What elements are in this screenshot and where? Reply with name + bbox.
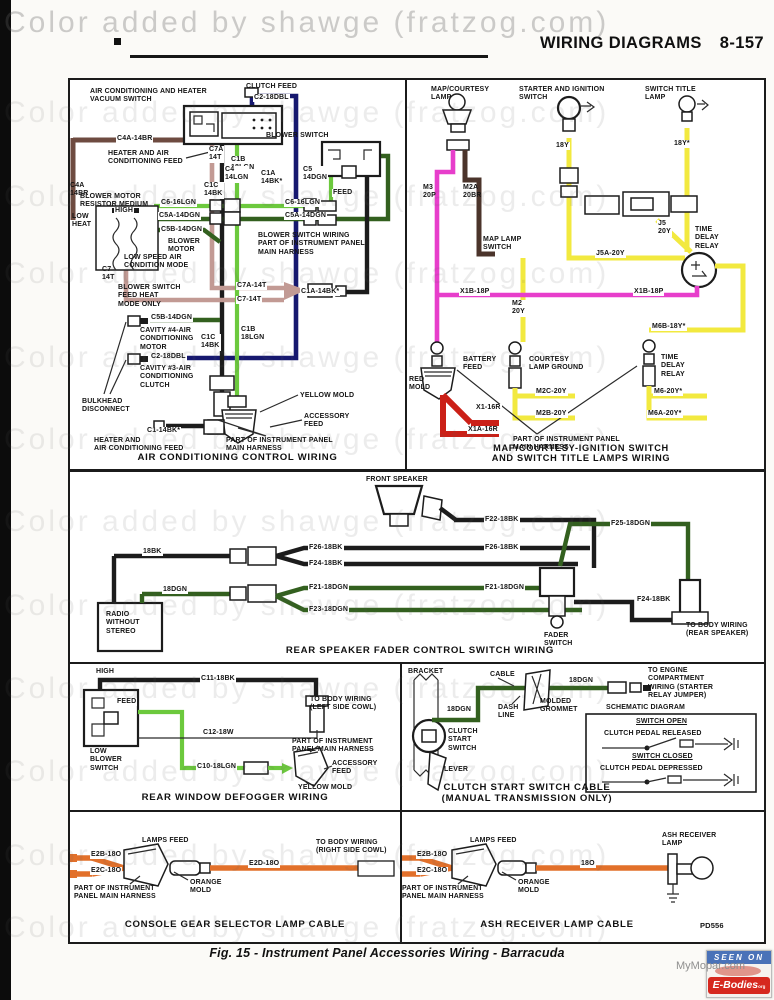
diagram-label: TIME DELAY RELAY [695, 226, 719, 251]
wire-label: X1B-18P [459, 288, 490, 296]
wire-label: C2-18DBL [253, 94, 290, 102]
panel-title-map: MAP/COURTESY-IGNITION SWITCH AND SWITCH … [421, 443, 741, 463]
wire-label: F24-18BK [308, 560, 344, 568]
wire-label: M6B-18Y* [651, 323, 687, 331]
body-connector-symbol [358, 861, 394, 876]
diagram-label: CAVITY #3-AIR CONDITIONING CLUTCH [140, 365, 194, 390]
manual-page: Color added by shawge (fratzog.com) Colo… [0, 0, 774, 1000]
diagram-label: MAP LAMP SWITCH [483, 236, 521, 253]
ash-lamp-symbol [667, 854, 713, 902]
wire-label: X1-16R [475, 404, 502, 412]
clutch-switch-symbol [413, 720, 446, 790]
diagram-label: PART OF INSTRUMENT PANEL MAIN HARNESS [74, 885, 156, 902]
diagram-label: BLOWER SWITCH FEED HEAT MODE ONLY [118, 284, 181, 309]
wire-label: C2-18DBL [150, 353, 187, 361]
front-speaker-symbol [376, 486, 456, 526]
diagram-label: CLUTCH START SWITCH [448, 728, 478, 753]
wire-label: M2 20Y [511, 300, 526, 317]
diagram-label: BATTERY FEED [463, 356, 496, 373]
diagram-label: LOW SPEED AIR CONDITION MODE [124, 254, 188, 271]
page-header: WIRING DIAGRAMS 8-157 [540, 34, 764, 53]
diagram-label: ACCESSORY FEED [304, 413, 349, 430]
wire-label: J5A-20Y [595, 250, 626, 258]
diagram-label: BLOWER MOTOR [168, 238, 200, 255]
diagram-label: SWITCH TITLE LAMP [645, 86, 696, 103]
wire-label: C1-14BK* [146, 427, 181, 435]
courtesy-ground-lamp-symbol [509, 342, 521, 388]
diagram-label: PART OF INSTRUMENT PANEL MAIN HARNESS [292, 738, 374, 755]
blower-switch-symbol [322, 142, 380, 178]
wire-label: E2B-18O [416, 851, 448, 859]
diagram-label: COURTESY LAMP GROUND [529, 356, 583, 373]
diagram-label: TO ENGINE COMPARTMENT WIRING (STARTER RE… [648, 667, 713, 701]
diagram-label: TO BODY WIRING (REAR SPEAKER) [686, 622, 748, 639]
diagram-label: BULKHEAD DISCONNECT [82, 398, 130, 415]
diagram-label: BLOWER SWITCH [266, 132, 329, 140]
fader-switch-symbol [540, 568, 574, 628]
wire-label: C1B 18LGN [240, 326, 265, 343]
panel-title-fader: REAR SPEAKER FADER CONTROL SWITCH WIRING [220, 645, 620, 656]
panel-air-conditioning: AIR CONDITIONING AND HEATER VACUUM SWITC… [68, 78, 407, 471]
wire-label: C1C 14BK [203, 182, 224, 199]
diagram-label: TO BODY WIRING (RIGHT SIDE COWL) [316, 839, 387, 856]
badge-brand-text: E-Bodies [713, 979, 759, 991]
diagram-label: SCHEMATIC DIAGRAM [606, 704, 685, 712]
diagram-label: RED MOLD [409, 376, 430, 393]
diagram-label: LOW BLOWER SWITCH [90, 748, 122, 773]
diagram-label: CLUTCH PEDAL RELEASED [604, 730, 702, 738]
wire-label: C5 14DGN [302, 166, 328, 183]
diagram-label: HIGH [114, 207, 134, 215]
wire-label: M2B-20Y [535, 410, 568, 418]
watermark: Color added by shawge (fratzog.com) [4, 6, 609, 40]
wire-label: E2C-18O [416, 867, 448, 875]
diagram-label: CAVITY #4-AIR CONDITIONING MOTOR [140, 327, 194, 352]
diagram-label: MOLDED GROMMET [540, 698, 578, 715]
wire-label: C6-16LGN [160, 199, 197, 207]
wire-label: C1A-14BK* [300, 288, 340, 296]
diagram-label: FRONT SPEAKER [366, 476, 428, 484]
diagram-label: SWITCH CLOSED [632, 753, 693, 761]
ebodies-badge: SEEN ON E-Bodiesorg [706, 950, 772, 998]
wire-label: E2B-18O [90, 851, 122, 859]
wire-label: J5 20Y [657, 220, 672, 237]
badge-brand: E-Bodiesorg [708, 977, 770, 994]
wire-label: C1C 14BK [200, 334, 221, 351]
wire-label: E2C-18O [90, 867, 122, 875]
wire-label: M2C-20Y [535, 388, 568, 396]
wire-label: C7A 14T [208, 146, 224, 163]
diagram-label: DASH LINE [498, 704, 518, 721]
wire-label: F22-18BK [484, 516, 520, 524]
time-delay-lamp-symbol [643, 340, 655, 386]
figure-caption: Fig. 15 - Instrument Panel Accessories W… [0, 946, 774, 960]
wire-label: C7A-14T [236, 282, 267, 290]
diagram-label: HEATER AND AIR CONDITIONING FEED [108, 150, 183, 167]
wire-label: 18DGN [446, 706, 472, 714]
badge-brand-suffix: org [758, 984, 765, 989]
wire-label: C11-18BK [200, 675, 236, 683]
wire-label: C10-18LGN [196, 763, 237, 771]
diagram-label: AIR CONDITIONING AND HEATER VACUUM SWITC… [90, 88, 207, 105]
wire-label: F24-18BK [636, 596, 672, 604]
wire-label: M6A-20Y* [647, 410, 683, 418]
part-code: PD556 [700, 921, 724, 930]
diagram-label: TIME DELAY RELAY [661, 354, 685, 379]
wire-label: M3 20P [423, 184, 436, 201]
body-connector-symbol [672, 580, 708, 624]
diagram-label: HIGH [96, 668, 114, 676]
diagram-label: CLUTCH FEED [246, 83, 297, 91]
wire-label: 18Y [555, 142, 570, 150]
diagram-label: LAMPS FEED [142, 837, 189, 845]
diagram-label: FEED [332, 189, 353, 197]
panel-console-lamp: LAMPS FEED E2B-18O E2C-18O PART OF INSTR… [68, 810, 406, 944]
panel-title-ac: AIR CONDITIONING CONTROL WIRING [70, 452, 405, 463]
header-bullet [114, 38, 121, 45]
diagram-label: LOW HEAT [72, 213, 91, 230]
diagram-label: BRACKET [408, 668, 443, 676]
page-edge-bar [0, 0, 11, 1000]
wire-label: 18Y* [673, 140, 691, 148]
wire-label: 18DGN [568, 677, 594, 685]
panel-title-clutch: CLUTCH START SWITCH CABLE (MANUAL TRANSM… [402, 782, 652, 804]
wire-label: F21-18DGN [308, 584, 349, 592]
diagram-label: BLOWER SWITCH WIRING PART OF INSTRUMENT … [258, 232, 365, 257]
diagram-label: LAMPS FEED [470, 837, 517, 845]
wire-label: 18O [580, 860, 596, 868]
page-number: 8-157 [720, 34, 764, 53]
fader-wiring-art [70, 472, 759, 661]
diagram-label: CABLE [490, 671, 515, 679]
mymopar-watermark: MyMopar.com [676, 960, 745, 972]
diagram-label: ORANGE MOLD [190, 879, 222, 896]
wire-label: C5A-14DGN [158, 212, 201, 220]
wire-label: F21-18DGN [484, 584, 525, 592]
wire-label: C12-18W [202, 729, 235, 737]
wire-label: C5A-14DGN [284, 212, 327, 220]
diagram-label: STARTER AND IGNITION SWITCH [519, 86, 604, 103]
diagram-label: ASH RECEIVER LAMP [662, 832, 716, 849]
wire-label: C7 14T [102, 266, 115, 283]
panel-clutch-start: BRACKET CABLE 18DGN TO ENGINE COMPARTMEN… [400, 662, 766, 816]
wire-label: F26-18BK [484, 544, 520, 552]
diagram-label: ORANGE MOLD [518, 879, 550, 896]
wire-label: X1A-16R [467, 426, 499, 434]
panel-title-defogger: REAR WINDOW DEFOGGER WIRING [70, 792, 400, 803]
panel-map-courtesy: MAP/COURTESY LAMP STARTER AND IGNITION S… [405, 78, 766, 471]
diagram-label: LEVER [444, 766, 468, 774]
wire-label: F23-18DGN [308, 606, 349, 614]
diagram-label: MAP/COURTESY LAMP [431, 86, 489, 103]
wire-label: 18DGN [162, 586, 188, 594]
wire-label: E2D-18O [248, 860, 280, 868]
wire-label: C5B-14DGN [150, 314, 193, 322]
diagram-label: YELLOW MOLD [300, 392, 354, 400]
diagram-label: PART OF INSTRUMENT PANEL MAIN HARNESS [402, 885, 484, 902]
wire-label: M6-20Y* [653, 388, 683, 396]
panel-ash-receiver: LAMPS FEED E2B-18O E2C-18O PART OF INSTR… [400, 810, 766, 944]
diagram-label: ACCESSORY FEED [332, 760, 377, 777]
wire-label: M2A 20BR [463, 184, 482, 201]
wire-label: F25-18DGN [610, 520, 651, 528]
panel-fader: FRONT SPEAKER 18BK 18DGN F26-18BK F24-18… [68, 470, 766, 668]
wire-label: F26-18BK [308, 544, 344, 552]
header-rule [130, 55, 488, 58]
diagram-label: CLUTCH PEDAL DEPRESSED [600, 765, 703, 773]
panel-title-ash: ASH RECEIVER LAMP CABLE [422, 919, 692, 930]
wire-label: C4A 14BR [70, 182, 89, 199]
wire-label: C7-14T [236, 296, 262, 304]
wire-label: C4 14LGN [224, 166, 249, 183]
wire-label: 18BK [142, 548, 163, 556]
panel-defogger: HIGH C11-18BK TO BODY WIRING (LEFT SIDE … [68, 662, 406, 816]
map-wiring-art [407, 80, 759, 464]
wire-label: C4A-14BR [116, 135, 153, 143]
page-title: WIRING DIAGRAMS [540, 34, 702, 53]
wire-label: X1B-18P [633, 288, 664, 296]
wire-label: C5B-14DGN [160, 226, 203, 234]
wire-label: C1A 14BK* [260, 170, 283, 187]
wire-label: C6-16LGN [284, 199, 321, 207]
diagram-label: TO BODY WIRING (LEFT SIDE COWL) [310, 696, 376, 713]
time-delay-relay-symbol [682, 253, 716, 287]
panel-title-console: CONSOLE GEAR SELECTOR LAMP CABLE [70, 919, 400, 930]
diagram-label: FEED [116, 698, 137, 706]
diagram-label: SWITCH OPEN [636, 718, 687, 726]
diagram-label: RADIO WITHOUT STEREO [106, 611, 140, 636]
switch-open-symbol [602, 738, 738, 751]
